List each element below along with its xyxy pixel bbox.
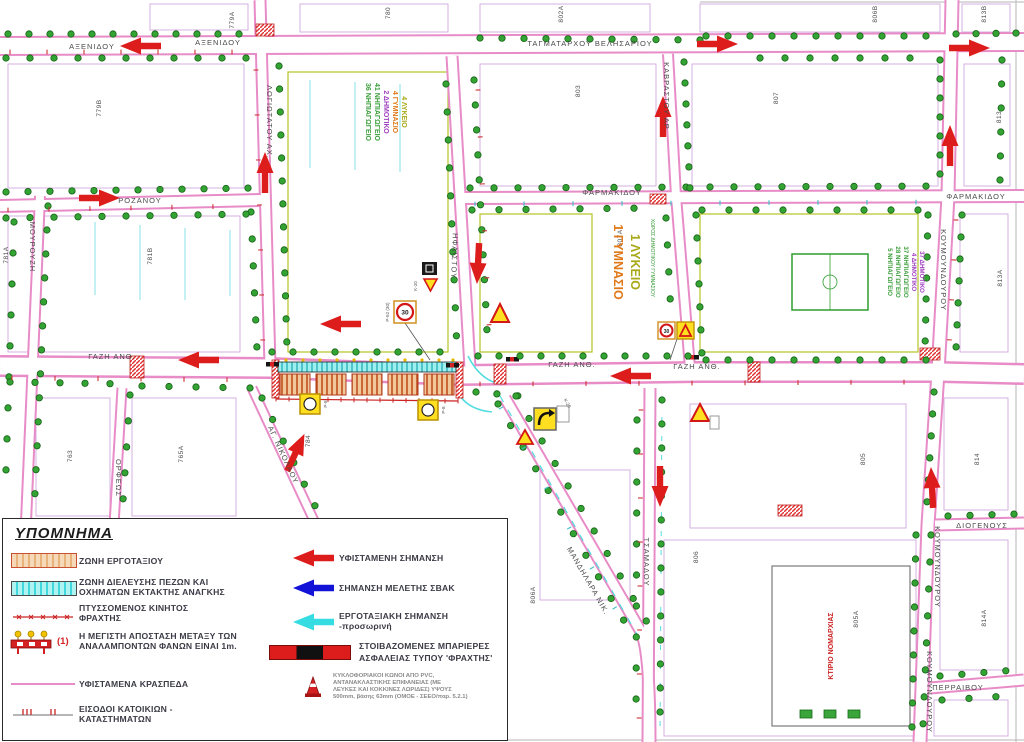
legend-note: ΚΥΚΛΟΦΟΡΙΑΚΟΙ ΚΩΝΟΙ ΑΠΟ PVC,: [333, 673, 434, 680]
tree: [91, 187, 97, 193]
tree: [957, 256, 963, 262]
tree: [276, 86, 282, 92]
legend-note: ΛΕΥΚΕΣ ΚΑΙ ΚΟΚΚΙΝΕΣ ΛΩΡΙΔΕΣ) ΥΨΟΥΣ: [333, 687, 452, 694]
tree: [915, 207, 921, 213]
tree: [1013, 30, 1019, 36]
tree: [998, 105, 1004, 111]
legend-label: -προσωρινή: [339, 621, 392, 631]
tree: [283, 316, 289, 322]
tree: [51, 55, 57, 61]
tree: [201, 186, 207, 192]
tree: [152, 31, 158, 37]
school-label-gymnasio-1: 1 ΓΥΜΝΑΣΙΟ: [611, 224, 625, 300]
tree: [236, 31, 242, 37]
tree: [697, 304, 703, 310]
tree: [827, 183, 833, 189]
tree: [11, 219, 17, 225]
tree: [539, 438, 545, 444]
speed-limit-value: 30: [401, 310, 409, 317]
tree: [82, 380, 88, 386]
tree: [312, 503, 318, 509]
tree: [452, 305, 458, 311]
legend-label: ΚΑΤΑΣΤΗΜΑΤΩΝ: [79, 714, 151, 724]
tree: [477, 35, 483, 41]
tree: [353, 349, 359, 355]
tree: [475, 152, 481, 158]
tree: [937, 114, 943, 120]
tree: [3, 189, 9, 195]
tree: [259, 395, 265, 401]
street-label-koumoundourou: ΚΟΥΜΟΥΝΔΟΥΡΟΥ: [933, 526, 942, 608]
tree: [747, 33, 753, 39]
street-label-tsamadou: ΤΣΑΜΑΔΟΥ: [642, 538, 651, 587]
tree: [912, 580, 918, 586]
tree: [219, 211, 225, 217]
tree: [477, 202, 483, 208]
tree: [25, 188, 31, 194]
tree: [139, 383, 145, 389]
tree: [634, 479, 640, 485]
tree: [591, 528, 597, 534]
tree: [577, 206, 583, 212]
tree: [659, 445, 665, 451]
tree: [107, 381, 113, 387]
tree: [147, 213, 153, 219]
tree: [910, 676, 916, 682]
tree: [444, 109, 450, 115]
work-zone-swatch: [11, 553, 77, 568]
tree: [928, 433, 934, 439]
tree: [631, 205, 637, 211]
tree: [835, 357, 841, 363]
tree: [912, 556, 918, 562]
speed-limit-30-sign: 30: [394, 301, 416, 323]
tree: [279, 178, 285, 184]
tree: [604, 205, 610, 211]
legend-label: ΦΡΑΧΤΗΣ: [79, 613, 121, 623]
tree: [280, 201, 286, 207]
tree: [601, 353, 607, 359]
street-label-gazi: ΓΑΖΗ ΑΝΘ.: [88, 352, 135, 361]
tree: [683, 101, 689, 107]
tree: [682, 80, 688, 86]
tree: [659, 184, 665, 190]
street-label-koumoundourou: ΚΟΥΜΟΥΝΔΟΥΡΟΥ: [939, 229, 948, 311]
tree: [215, 31, 221, 37]
tree: [659, 397, 665, 403]
block-number: 780: [385, 7, 392, 19]
flashing-barrier-icon: [9, 629, 53, 660]
tree: [937, 57, 943, 63]
tree: [667, 296, 673, 302]
tree: [374, 349, 380, 355]
tree: [254, 344, 260, 350]
school-label: 28 ΝΗΠΙΑΓΩΓΕΙΟ: [894, 246, 901, 297]
tree: [813, 357, 819, 363]
tree: [807, 207, 813, 213]
school-label: 4 ΛΥΚΕΙΟ: [400, 96, 407, 128]
tree: [835, 33, 841, 39]
tree: [38, 347, 44, 353]
tree: [791, 33, 797, 39]
school-label: 5 ΝΗΠΙΑΓΩΓΕΙΟ: [886, 248, 893, 296]
tree: [633, 696, 639, 702]
tree: [443, 81, 449, 87]
tree: [27, 55, 33, 61]
tree: [563, 184, 569, 190]
tree: [622, 353, 628, 359]
legend-label: ΣΗΜΑΝΣΗ ΜΕΛΕΤΗΣ ΣΒΑΚ: [339, 583, 455, 593]
tree: [395, 349, 401, 355]
tree: [620, 617, 626, 623]
tree: [7, 343, 13, 349]
tree: [280, 224, 286, 230]
tree: [193, 384, 199, 390]
tree: [634, 448, 640, 454]
school-label: 4 ΔΗΜΟΤΙΚΟ: [910, 253, 917, 291]
block-number: 763: [67, 450, 74, 462]
school-label: 37 ΝΗΠΙΑΓΩΓΕΙΟ: [902, 246, 909, 297]
tree: [472, 102, 478, 108]
legend-label: ΕΙΣΟΔΟΙ ΚΑΤΟΙΚΙΩΝ -: [79, 704, 173, 714]
traffic-cone-icon: [303, 675, 323, 704]
tree: [666, 269, 672, 275]
tree: [937, 76, 943, 82]
folding-fence-icon: [11, 609, 75, 627]
tree: [769, 357, 775, 363]
tree: [476, 177, 482, 183]
sign-label-p8: Ρ-8: [441, 406, 446, 414]
tree: [926, 586, 932, 592]
parked-cars: [800, 710, 860, 718]
tree: [694, 235, 700, 241]
tree: [51, 214, 57, 220]
block-number: 765A: [178, 445, 185, 462]
school-label: 36 ΝΗΠΙΑΓΩΓΕΙΟ: [364, 83, 371, 142]
tree: [658, 613, 664, 619]
tree: [937, 133, 943, 139]
tree: [954, 322, 960, 328]
tree: [243, 55, 249, 61]
tree: [998, 129, 1004, 135]
tree: [558, 509, 564, 515]
tree: [879, 33, 885, 39]
tree: [44, 227, 50, 233]
tree: [634, 417, 640, 423]
tree: [195, 212, 201, 218]
tree: [125, 418, 131, 424]
block-number: 781A: [3, 246, 10, 263]
tree: [803, 183, 809, 189]
block-number: 813: [996, 111, 1003, 123]
tree: [973, 31, 979, 37]
tree: [955, 300, 961, 306]
tree: [99, 213, 105, 219]
street-label-diogenous: ΔΙΟΓΕΝΟΥΣ: [956, 521, 1008, 530]
street-label-gazi: ΓΑΖΗ ΑΝΘ.: [548, 360, 595, 369]
tree: [911, 604, 917, 610]
tree: [40, 299, 46, 305]
tree: [473, 389, 479, 395]
tree: [966, 695, 972, 701]
block-number: 803: [575, 85, 582, 97]
entrances-icon: [11, 705, 75, 723]
tree: [552, 460, 558, 466]
street-label-axenidou: ΑΞΕΝΙΔΟΥ: [69, 42, 115, 51]
tree: [578, 505, 584, 511]
tree: [570, 531, 576, 537]
tree: [45, 203, 51, 209]
tree: [32, 379, 38, 385]
tree: [1011, 511, 1017, 517]
tree: [681, 59, 687, 65]
tree: [927, 455, 933, 461]
tree: [282, 270, 288, 276]
tree: [879, 357, 885, 363]
tree: [166, 383, 172, 389]
tree: [526, 415, 532, 421]
tree: [658, 517, 664, 523]
tree: [685, 143, 691, 149]
tree: [42, 275, 48, 281]
tree: [550, 206, 556, 212]
pedestrian-zone-swatch: [11, 581, 77, 596]
red-arrow-icon: [289, 549, 335, 572]
tree: [507, 422, 513, 428]
school-label: 41 ΝΗΠΙΑΓΩΓΕΙΟ: [373, 83, 380, 142]
legend-label: ΥΦΙΣΤΑΜΕΝΑ ΚΡΑΣΠΕΔΑ: [79, 679, 188, 689]
tree: [3, 55, 9, 61]
street-label-gazi: ΓΑΖΗ ΑΝΘ.: [673, 362, 720, 371]
tree: [26, 31, 32, 37]
tree: [282, 293, 288, 299]
tree: [907, 55, 913, 61]
tree: [922, 338, 928, 344]
tree: [69, 188, 75, 194]
tree: [993, 694, 999, 700]
tree: [491, 185, 497, 191]
tree: [75, 214, 81, 220]
tree: [813, 33, 819, 39]
block-number: 813A: [997, 269, 1004, 286]
block-number: 814: [974, 453, 981, 465]
street-label-koumoundourou: ΚΟΥΜΟΥΝΔΟΥΡΟΥ: [925, 651, 934, 733]
tree: [945, 513, 951, 519]
tree: [857, 357, 863, 363]
tree: [753, 207, 759, 213]
street-label-farmakidou: ΦΑΡΜΑΚΙΔΟΥ: [582, 188, 642, 197]
tree: [757, 55, 763, 61]
tree: [747, 357, 753, 363]
tree: [780, 207, 786, 213]
block-number: 805: [860, 453, 867, 465]
tree: [684, 122, 690, 128]
tree: [663, 215, 669, 221]
tree: [301, 481, 307, 487]
tree: [634, 510, 640, 516]
legend-box: ΥΠΟΜΝΗΜΑ ΖΩΝΗ ΕΡΓΟΤΑΞΙΟΥ ΖΩΝΗ ΔΙΕΛΕΥΣΗΣ …: [2, 518, 508, 741]
legend-label: ΟΧΗΜΑΤΩΝ ΕΚΤΑΚΤΗΣ ΑΝΑΓΚΗΣ: [79, 587, 225, 597]
tree: [925, 212, 931, 218]
tree: [967, 512, 973, 518]
tree: [913, 532, 919, 538]
tree: [861, 207, 867, 213]
tree: [250, 263, 256, 269]
tree: [496, 353, 502, 359]
tree: [657, 709, 663, 715]
street-label-orfeos: ΟΡΦΕΩΣ: [114, 459, 123, 497]
street-label-farmakidou: ΦΑΡΜΑΚΙΔΟΥ: [946, 192, 1006, 201]
block-number: 779B: [96, 99, 103, 116]
tree: [523, 206, 529, 212]
block-number: 806A: [530, 586, 537, 603]
tree: [923, 640, 929, 646]
street-label-axenidou: ΑΞΕΝΙΔΟΥ: [195, 38, 241, 47]
sign-label-p8: Ρ-8: [323, 400, 328, 408]
p8-sign: [300, 394, 320, 414]
legend-note: 500mm, βάσης 63mm (ΟΜΟΕ - ΣΕΕΟ/παρ. 5.2.…: [333, 694, 468, 701]
tree: [657, 685, 663, 691]
tree: [469, 207, 475, 213]
tree: [276, 63, 282, 69]
tree: [643, 618, 649, 624]
tree: [219, 55, 225, 61]
tree: [658, 589, 664, 595]
tree: [447, 193, 453, 199]
street-label-logiotatou: ΛΟΓΙΩΤΑΤΟΥ ΑΧ.: [265, 85, 274, 159]
tree: [953, 344, 959, 350]
tree: [479, 227, 485, 233]
tree: [911, 628, 917, 634]
tree: [32, 491, 38, 497]
p8-sign: [418, 400, 438, 420]
tree: [707, 184, 713, 190]
legend-label: ΣΤΟΙΒΑΖΟΜΕΝΕΣ ΜΠΑΡΙΕΡΕΣ: [359, 641, 490, 651]
tree: [901, 357, 907, 363]
block-number: 806: [693, 551, 700, 563]
tree: [10, 250, 16, 256]
tree: [445, 137, 451, 143]
cyan-arrow-icon: [289, 613, 335, 636]
tree: [127, 392, 133, 398]
tree: [416, 349, 422, 355]
tree: [57, 380, 63, 386]
tree: [269, 416, 275, 422]
tree: [901, 33, 907, 39]
tree: [899, 183, 905, 189]
existing-curb-icon: [11, 683, 75, 685]
tree: [909, 724, 915, 730]
legend-label: ΠΤΥΣΣΟΜΕΝΟΣ ΚΙΝΗΤΟΣ: [79, 603, 188, 613]
tree: [113, 187, 119, 193]
tree: [284, 339, 290, 345]
tree: [135, 187, 141, 193]
tree: [910, 652, 916, 658]
tree: [686, 164, 692, 170]
legend-note: ΑΝΤΑΝΑΚΛΑΣΤΙΚΗΣ ΕΠΙΦΑΝΕΙΑΣ (ΜΕ: [333, 680, 441, 687]
tree: [924, 233, 930, 239]
tree: [3, 215, 9, 221]
block-number: 807: [773, 92, 780, 104]
tree: [633, 572, 639, 578]
tree: [695, 258, 701, 264]
sign-label-k20: Κ-20: [413, 281, 418, 291]
tree: [36, 395, 42, 401]
tree: [726, 207, 732, 213]
tree: [664, 242, 670, 248]
tree: [604, 550, 610, 556]
tree: [157, 186, 163, 192]
tree: [37, 371, 43, 377]
tree: [496, 207, 502, 213]
tree: [653, 36, 659, 42]
tree: [565, 483, 571, 489]
tree: [35, 419, 41, 425]
tree: [47, 31, 53, 37]
tree: [8, 312, 14, 318]
tree: [513, 393, 519, 399]
stacked-barrier-icon: [269, 645, 351, 660]
tree: [533, 466, 539, 472]
tree: [1003, 668, 1009, 674]
tree: [89, 31, 95, 37]
tree: [3, 467, 9, 473]
school-label: 37 ΔΗΜΟΤΙΚΟ: [918, 251, 925, 293]
tree: [517, 353, 523, 359]
school-label: 2 ΔΗΜΟΤΙΚΟ: [382, 90, 389, 134]
tree: [475, 353, 481, 359]
tree: [68, 31, 74, 37]
tree: [539, 185, 545, 191]
tree: [834, 207, 840, 213]
tree: [249, 236, 255, 242]
tree: [453, 333, 459, 339]
tree: [515, 185, 521, 191]
tree: [123, 444, 129, 450]
tree: [269, 349, 275, 355]
tree: [924, 613, 930, 619]
work-zone-sections: [280, 374, 454, 395]
tree: [110, 31, 116, 37]
tree: [937, 95, 943, 101]
street-label-rozanou: ΡΟΖΑΝΟΥ: [118, 196, 161, 205]
tree: [939, 697, 945, 703]
tree: [937, 171, 943, 177]
tree: [34, 443, 40, 449]
tree: [909, 700, 915, 706]
legend-label: Η ΜΕΓΙΣΤΗ ΑΠΟΣΤΑΣΗ ΜΕΤΑΞΥ ΤΩΝ: [79, 631, 237, 641]
tree: [643, 353, 649, 359]
tree: [851, 183, 857, 189]
tree: [959, 671, 965, 677]
label-ktirio-nomarchias: ΚΤΙΡΙΟ ΝΟΜΑΡΧΙΑΣ: [828, 612, 835, 679]
tree: [499, 35, 505, 41]
tree: [937, 673, 943, 679]
tree: [633, 603, 639, 609]
tree: [311, 349, 317, 355]
tree: [494, 391, 500, 397]
tree: [703, 33, 709, 39]
tree: [693, 212, 699, 218]
tree: [993, 30, 999, 36]
tree: [179, 186, 185, 192]
tree: [595, 574, 601, 580]
label-xoros-dimotikou: ΧΩΡΟΣ ΔΗΜΟΤΙΚΟΥ ΓΥΜΝΑΣΙΟΥ: [649, 219, 655, 298]
tree: [923, 317, 929, 323]
legend-label: ΑΝΑΛΑΜΠΟΝΤΩΝ ΦΑΝΩΝ ΕΙΝΑΙ 1m.: [79, 641, 237, 651]
tree: [953, 31, 959, 37]
tree: [782, 55, 788, 61]
